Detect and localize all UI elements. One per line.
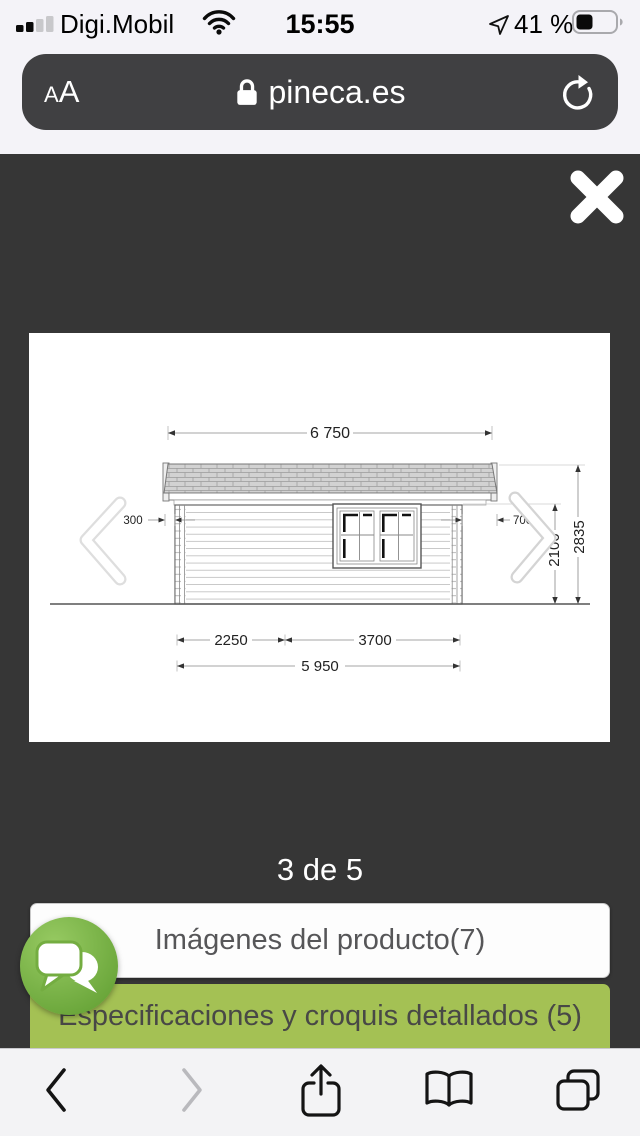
- back-button[interactable]: [40, 1066, 74, 1114]
- address-bar[interactable]: AA pineca.es: [22, 54, 618, 130]
- dimension-label: 300: [123, 515, 142, 527]
- url-group: pineca.es: [22, 54, 618, 130]
- lock-icon: [235, 77, 259, 107]
- pagination-label: 3 de 5: [0, 852, 640, 888]
- share-icon: [303, 1066, 339, 1115]
- reader-large-a: A: [59, 74, 80, 110]
- browser-toolbar: [0, 1048, 640, 1136]
- status-bar: Digi.Mobil 15:55 41 %: [0, 0, 640, 44]
- book-icon: [427, 1072, 471, 1105]
- dimension-label: 2250: [214, 632, 247, 649]
- location-arrow-icon: [487, 13, 511, 37]
- carrier-label: Digi.Mobil: [60, 9, 174, 40]
- bookmarks-button[interactable]: [423, 1069, 475, 1111]
- product-drawing: 6 750 300 700 2100 2835 2: [29, 333, 610, 742]
- battery-percent-label: 41 %: [514, 9, 573, 40]
- dimension-label: 3700: [358, 632, 391, 649]
- close-button[interactable]: [566, 166, 628, 228]
- product-image: 6 750 300 700 2100 2835 2: [29, 333, 610, 742]
- chat-widget-button[interactable]: [20, 917, 118, 1015]
- cellular-signal-icon: [16, 12, 54, 34]
- reader-mode-button[interactable]: AA: [44, 74, 79, 110]
- share-button[interactable]: [298, 1062, 344, 1120]
- wifi-icon: [202, 9, 236, 35]
- next-image-button[interactable]: [515, 498, 550, 577]
- url-domain: pineca.es: [269, 74, 406, 111]
- tabs-icon: [558, 1071, 598, 1109]
- chevron-forward-icon: [184, 1070, 200, 1110]
- battery-icon: [572, 9, 626, 35]
- forward-button[interactable]: [174, 1066, 208, 1114]
- prev-image-button[interactable]: [86, 503, 120, 579]
- chat-bubbles-icon: [20, 917, 118, 1015]
- specifications-button-label: Especificaciones y croquis detallados (5…: [58, 1000, 582, 1033]
- chevron-back-icon: [48, 1070, 64, 1110]
- tabs-button[interactable]: [555, 1069, 601, 1111]
- roof: [163, 463, 497, 505]
- dimension-label: 2835: [571, 520, 588, 553]
- product-images-button-label: Imágenes del producto(7): [155, 924, 485, 957]
- window: [333, 504, 421, 568]
- dimension-label: 6 750: [310, 425, 350, 442]
- close-icon: [578, 178, 616, 216]
- browser-header: Digi.Mobil 15:55 41 % AA pineca.es: [0, 0, 640, 154]
- clock-label: 15:55: [240, 9, 400, 40]
- reload-button[interactable]: [558, 71, 596, 113]
- dimension-label: 5 950: [301, 658, 339, 675]
- reader-small-a: A: [44, 82, 59, 108]
